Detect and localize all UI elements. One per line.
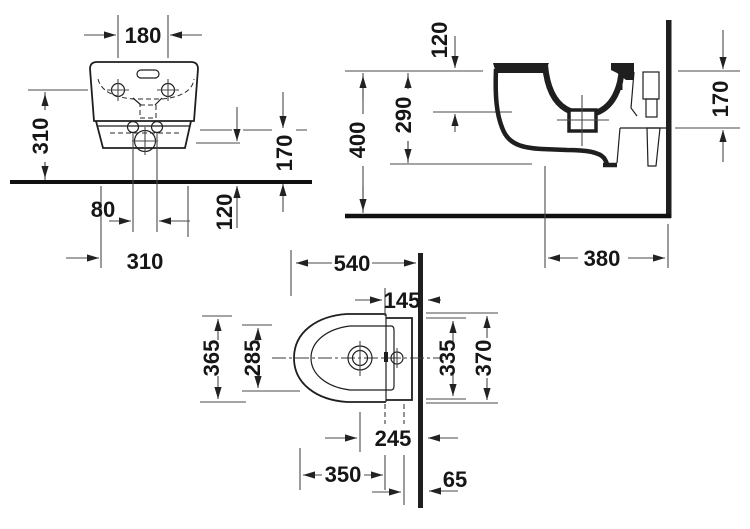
- dim-top-335: 335: [426, 318, 466, 399]
- rim-mark: [384, 352, 388, 362]
- dim-front-180: 180: [84, 15, 202, 58]
- bidet-front-outline: [90, 62, 198, 155]
- dim-label-top-145: 145: [384, 288, 421, 313]
- dim-side-170: 170: [708, 30, 733, 162]
- dim-front-120: 120: [212, 107, 237, 230]
- dim-label-top-365: 365: [199, 340, 224, 377]
- dim-label-top-245: 245: [375, 426, 412, 451]
- dim-top-365: 365: [199, 316, 246, 402]
- dim-top-245: 245: [325, 426, 458, 451]
- dim-side-290: 290: [391, 73, 416, 163]
- dim-label-top-335: 335: [435, 340, 460, 377]
- fixing-hole-right: [152, 122, 163, 133]
- dim-label-top-370: 370: [471, 340, 496, 377]
- technical-drawing: 180 310 120 170 80: [0, 0, 750, 529]
- dim-label-top-540: 540: [334, 251, 371, 276]
- wall-line-side: [666, 20, 672, 218]
- dim-label-side-400: 400: [345, 122, 370, 159]
- dim-label-front-310-left: 310: [28, 118, 53, 155]
- dim-label-front-310-bottom: 310: [127, 249, 164, 274]
- dim-front-170: 170: [272, 92, 297, 212]
- dim-front-310-bottom: 310: [66, 249, 163, 274]
- wall-bracket: [643, 72, 660, 166]
- dim-label-top-350: 350: [325, 462, 362, 487]
- tap-slot: [137, 70, 159, 78]
- dim-label-front-180: 180: [125, 23, 162, 48]
- dim-label-top-285: 285: [240, 340, 265, 377]
- dim-label-top-65: 65: [443, 467, 467, 492]
- dim-label-side-380: 380: [584, 246, 621, 271]
- dim-side-120: 120: [427, 22, 455, 132]
- dim-label-front-80: 80: [91, 197, 115, 222]
- overflow-mark: [619, 82, 623, 90]
- dim-side-400: 400: [345, 73, 370, 213]
- side-view: 120 400 290 170 380: [345, 20, 740, 271]
- drawing-canvas: 180 310 120 170 80: [0, 0, 750, 529]
- dim-front-310-left: 310: [28, 90, 88, 180]
- dim-side-380: 380: [548, 246, 665, 271]
- dim-top-350: 350: [303, 462, 383, 487]
- dim-label-front-170: 170: [272, 135, 297, 172]
- dim-top-145: 145: [355, 288, 441, 316]
- fixing-hole-left: [128, 122, 139, 133]
- bidet-plan-outline: [294, 314, 412, 402]
- dim-label-front-120: 120: [212, 194, 237, 231]
- dim-front-80: 80: [91, 197, 190, 222]
- top-view: 540 145 365 285 335: [199, 250, 498, 508]
- front-view: 180 310 120 170 80: [10, 15, 312, 274]
- rear-block: [386, 318, 412, 400]
- dim-label-side-120: 120: [427, 22, 452, 59]
- dim-label-side-170: 170: [708, 81, 733, 118]
- bidet-side-profile: [493, 63, 666, 166]
- dim-label-side-290: 290: [391, 97, 416, 134]
